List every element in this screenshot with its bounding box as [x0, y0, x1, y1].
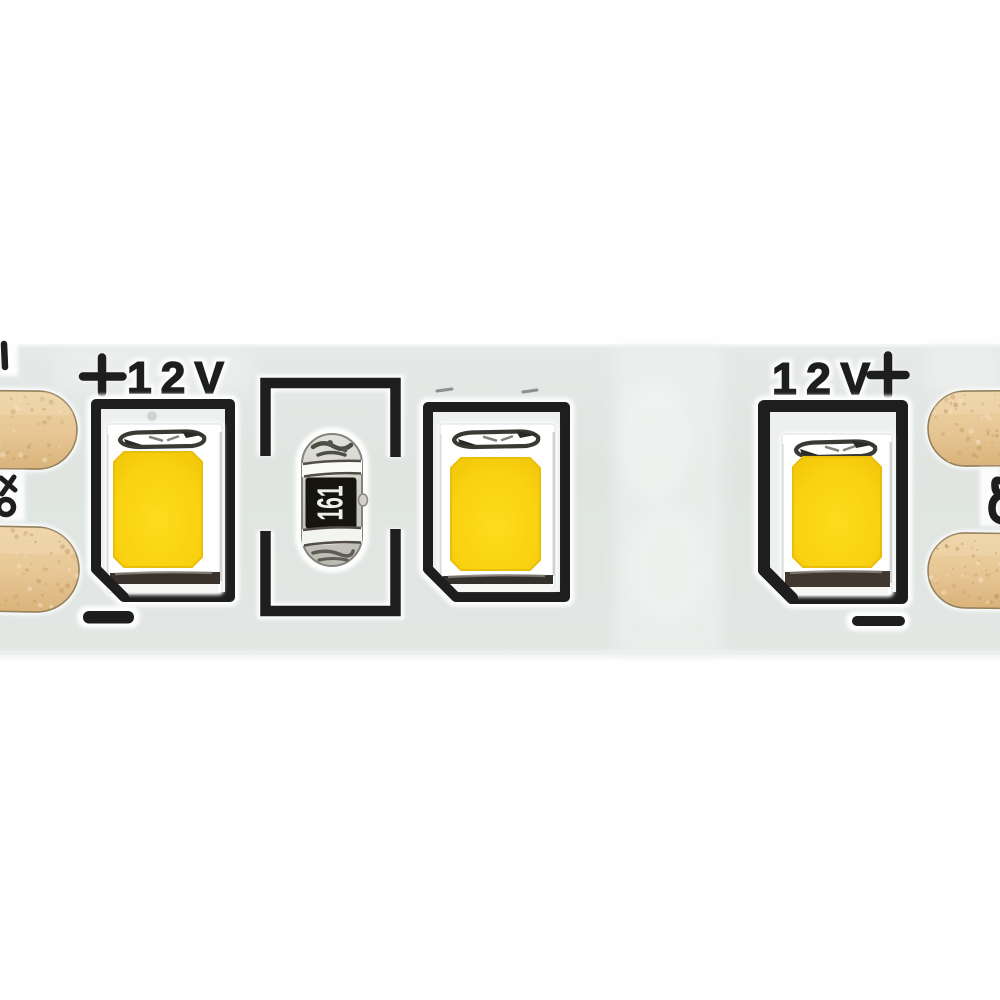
svg-text:161: 161	[310, 486, 351, 521]
